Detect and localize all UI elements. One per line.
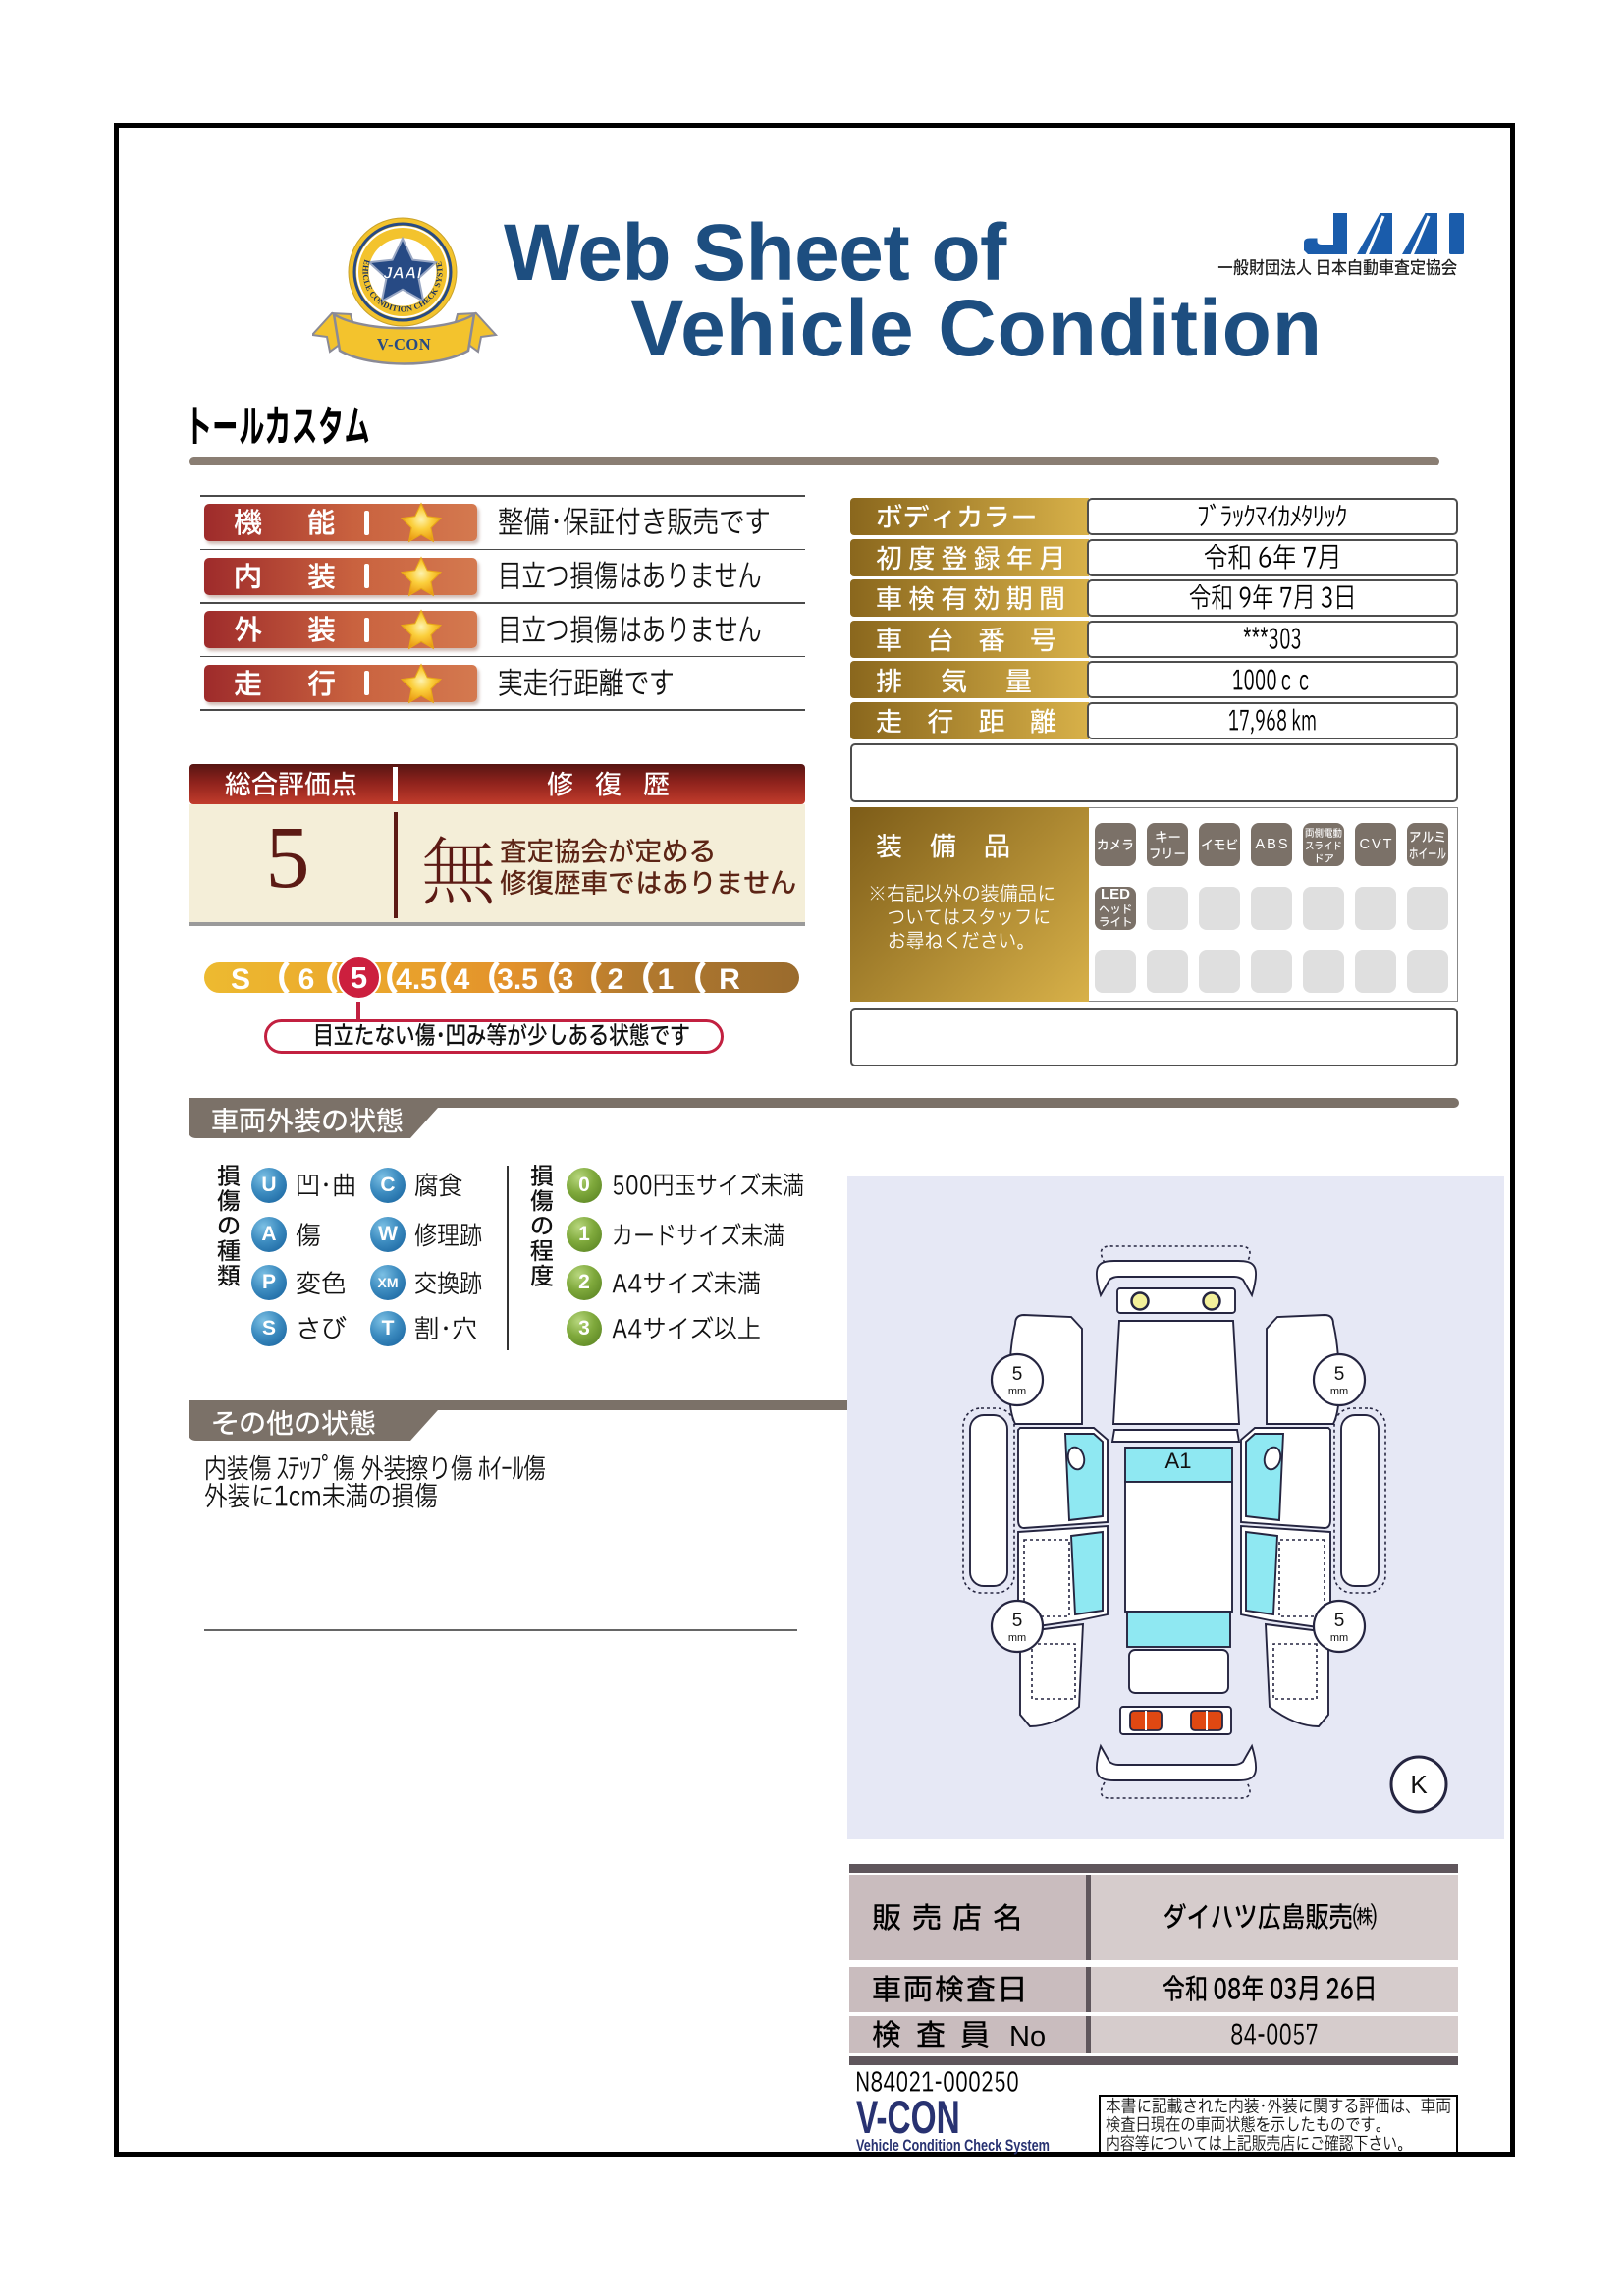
svg-text:5: 5: [1334, 1364, 1345, 1385]
svg-text:JAAI: JAAI: [383, 265, 422, 283]
svg-text:5: 5: [1012, 1364, 1023, 1385]
svg-text:mm: mm: [1330, 1386, 1348, 1397]
svg-text:A1: A1: [1165, 1449, 1192, 1473]
svg-text:5: 5: [1012, 1611, 1023, 1631]
svg-text:V-CON: V-CON: [377, 335, 431, 354]
svg-text:K: K: [1410, 1770, 1428, 1799]
svg-text:mm: mm: [1008, 1386, 1026, 1397]
svg-text:mm: mm: [1008, 1632, 1026, 1644]
svg-text:5: 5: [1334, 1611, 1345, 1631]
svg-text:mm: mm: [1330, 1632, 1348, 1644]
